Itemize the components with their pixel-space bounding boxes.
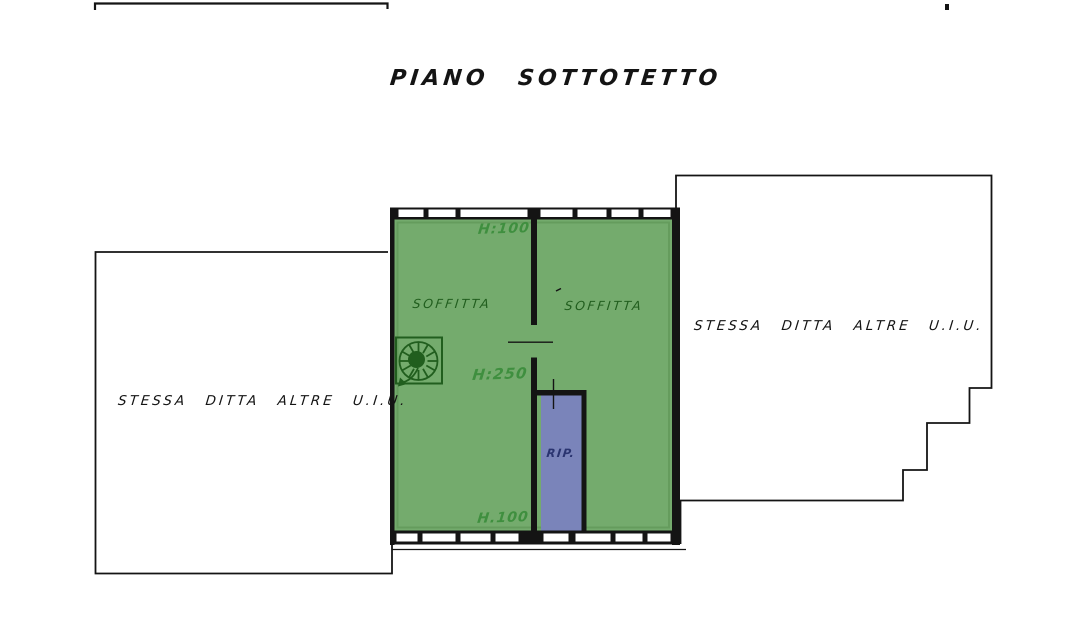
storage-room-area	[541, 395, 582, 531]
height-note-bottom: H.100	[474, 509, 532, 527]
left-unit-label: STESSA DITTA ALTRE U.I.U.	[117, 393, 387, 409]
wall-right	[672, 208, 680, 546]
storage-label: RIP.	[537, 446, 584, 460]
left-unit-outline	[96, 252, 393, 574]
top-right-mark	[945, 4, 949, 10]
floor-plan: PIANO SOTTOTETTO STESSA DITTA ALTRE U.I.…	[0, 0, 1077, 633]
right-unit-label: STESSA DITTA ALTRE U.I.U.	[693, 318, 963, 334]
height-note-middle: H:250	[469, 364, 531, 384]
wall-bottom	[390, 531, 686, 550]
wall-left	[390, 208, 395, 546]
floor-plan-linework	[0, 0, 1077, 633]
right-unit-outline	[676, 176, 992, 545]
storage-wall-top	[537, 390, 587, 396]
soffitta-left-label: SOFFITTA	[411, 296, 493, 311]
storage-wall-right	[582, 390, 587, 531]
plan-title: PIANO SOTTOTETTO	[389, 66, 692, 91]
height-note-top: H:100	[475, 220, 533, 238]
soffitta-right-label: SOFFITTA	[563, 298, 645, 313]
wall-top	[390, 208, 680, 220]
top-edge-line	[95, 4, 388, 11]
